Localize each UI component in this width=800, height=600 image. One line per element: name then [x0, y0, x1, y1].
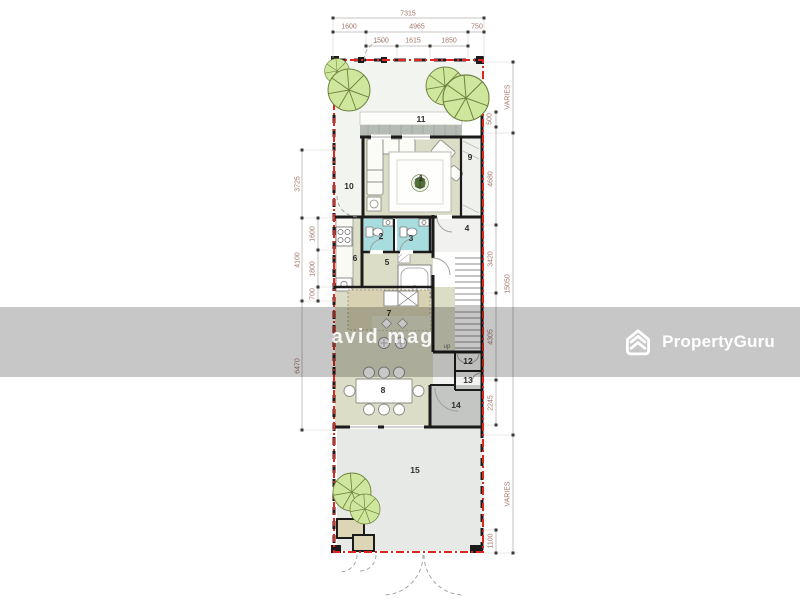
room-label-5: 5 [385, 257, 390, 267]
room-label-14: 14 [451, 400, 460, 410]
dim-right-varies-bottom: VARIES [505, 481, 512, 506]
dim-right-2245: 2245 [488, 395, 495, 411]
room-label-4: 4 [465, 223, 470, 233]
room-label-6: 6 [353, 253, 358, 263]
dim-top-1500: 1500 [373, 38, 389, 45]
double-sink-icon [398, 291, 418, 306]
dim-top-1600: 1600 [341, 24, 357, 31]
room-label-1: 1 [419, 173, 424, 183]
dim-right-1100: 1100 [488, 533, 495, 548]
dim-left-700: 700 [310, 288, 317, 300]
dim-left-1800: 1800 [310, 261, 317, 277]
dim-right-varies-top: VARIES [505, 84, 512, 109]
floor-plan-drawing [0, 0, 800, 600]
dim-right-4680: 4680 [488, 171, 495, 187]
room-label-3: 3 [409, 233, 414, 243]
watermark-band [0, 307, 800, 377]
dim-right-3420: 3420 [488, 251, 495, 267]
room-label-15: 15 [410, 465, 419, 475]
room-label-8: 8 [381, 385, 386, 395]
room-label-2: 2 [379, 231, 384, 241]
dim-right-500: 500 [487, 113, 494, 125]
dim-left-4100: 4100 [295, 252, 302, 268]
room-label-11: 11 [417, 114, 426, 124]
side-table [367, 197, 381, 211]
counter-strip [336, 218, 353, 291]
dim-top-total: 7315 [400, 11, 416, 18]
dim-left-1600: 1600 [310, 226, 317, 242]
dim-left-3725: 3725 [295, 176, 302, 192]
dim-top-1850: 1850 [441, 38, 457, 45]
dim-top-750: 750 [471, 24, 483, 31]
floor-plan-page: 1 2 3 4 5 6 7 8 9 10 11 12 13 14 15 up 7… [0, 0, 800, 600]
dim-top-4965: 4965 [409, 24, 425, 31]
dim-top-1615: 1615 [405, 38, 421, 45]
room-label-10: 10 [344, 181, 353, 191]
dim-right-15050: 15050 [505, 274, 512, 293]
room-label-9: 9 [468, 152, 473, 162]
